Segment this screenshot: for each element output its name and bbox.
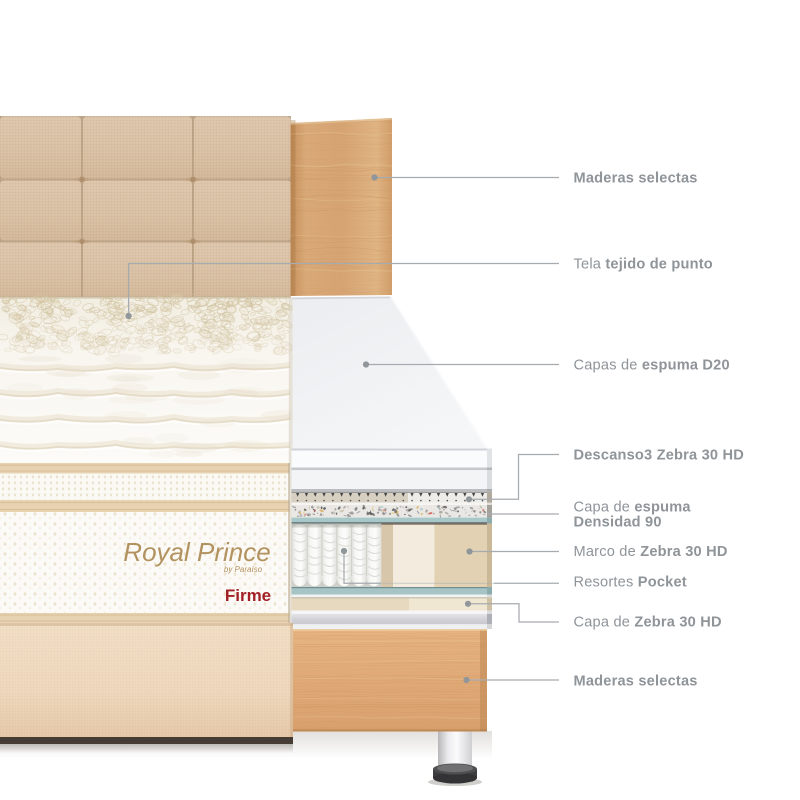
svg-text:Tela tejido de punto: Tela tejido de punto — [574, 257, 713, 273]
svg-text:Densidad 90: Densidad 90 — [574, 515, 662, 531]
svg-text:Royal Prince: Royal Prince — [123, 537, 270, 567]
svg-text:Capa de espuma: Capa de espuma — [574, 500, 692, 516]
svg-text:by Paraíso: by Paraíso — [224, 565, 263, 574]
svg-text:Resortes Pocket: Resortes Pocket — [574, 575, 687, 591]
svg-text:Maderas selectas: Maderas selectas — [574, 171, 698, 187]
svg-text:Firme: Firme — [225, 586, 271, 605]
svg-text:Descanso3 Zebra 30 HD: Descanso3 Zebra 30 HD — [574, 448, 744, 464]
svg-text:Maderas selectas: Maderas selectas — [574, 674, 698, 690]
svg-text:Capa de Zebra 30 HD: Capa de Zebra 30 HD — [574, 615, 722, 631]
svg-text:Marco de Zebra 30 HD: Marco de Zebra 30 HD — [574, 544, 728, 560]
svg-text:Capas de espuma D20: Capas de espuma D20 — [574, 358, 730, 374]
